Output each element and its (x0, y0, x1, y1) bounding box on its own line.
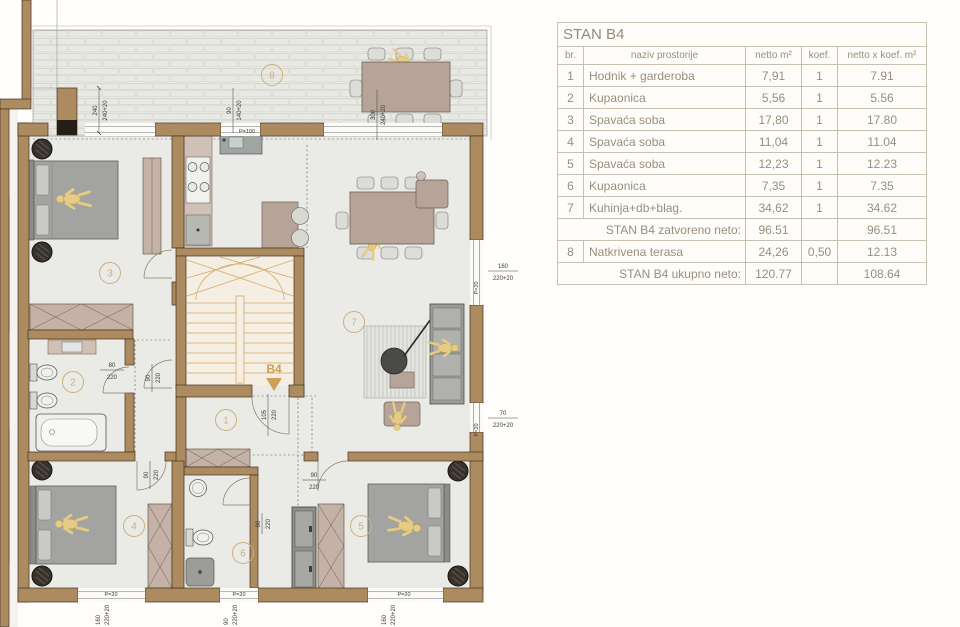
toilet-icon (37, 365, 57, 380)
svg-text:3: 3 (107, 269, 113, 280)
svg-text:6: 6 (240, 549, 246, 560)
total-label: STAN B4 ukupno neto: (558, 263, 746, 285)
armchair (416, 180, 448, 208)
area-table-panel: STAN B4 br. naziv prostorije netto m² ko… (557, 22, 927, 285)
svg-text:90: 90 (227, 107, 233, 114)
svg-text:240: 240 (93, 105, 99, 116)
wall-cap (57, 120, 77, 135)
svg-text:105: 105 (262, 409, 268, 420)
dim-bottom-window1: 160 220+20 (96, 604, 111, 625)
svg-text:220+20: 220+20 (233, 604, 239, 625)
table-row: 2 Kupaonica 5,56 1 5.56 (558, 87, 927, 109)
subtotal-label: STAN B4 zatvoreno neto: (558, 219, 746, 241)
area-table: STAN B4 br. naziv prostorije netto m² ko… (557, 22, 927, 285)
col-br: br. (558, 47, 584, 65)
label-p20: P=20 (233, 592, 246, 598)
svg-text:2: 2 (70, 378, 76, 389)
svg-text:220+20: 220+20 (105, 604, 111, 625)
wardrobe (148, 504, 172, 588)
page: 240 240+20 90 140+20 P=100 300 240+20 16… (0, 0, 960, 627)
washbasin-icon (190, 480, 207, 497)
svg-text:90: 90 (311, 473, 318, 479)
svg-text:220+20: 220+20 (391, 604, 397, 625)
svg-text:90: 90 (144, 471, 150, 478)
col-koef: koef. (802, 47, 838, 65)
svg-text:220: 220 (156, 372, 162, 383)
svg-text:7: 7 (351, 318, 357, 329)
svg-text:80: 80 (256, 520, 262, 527)
wardrobe (30, 304, 133, 330)
svg-text:160: 160 (382, 614, 388, 625)
col-netto: netto m² (746, 47, 802, 65)
svg-text:8: 8 (269, 71, 275, 82)
stool-icon (292, 230, 309, 247)
svg-text:220: 220 (154, 469, 160, 480)
svg-text:160: 160 (498, 264, 509, 270)
svg-text:160: 160 (96, 614, 102, 625)
svg-text:90: 90 (146, 374, 152, 381)
coffee-table (381, 348, 407, 374)
svg-text:220: 220 (266, 518, 272, 529)
svg-text:5: 5 (358, 522, 364, 533)
label-p20: P=20 (105, 592, 118, 598)
svg-text:90: 90 (224, 618, 230, 625)
svg-text:240+20: 240+20 (381, 104, 387, 125)
label-p20: P=20 (398, 592, 411, 598)
wall-gap (9, 109, 18, 627)
dim-living-window: 160 220+20 (488, 264, 518, 282)
wardrobe (318, 504, 344, 589)
svg-text:1: 1 (223, 416, 229, 427)
label-p20: P=20 (474, 424, 480, 437)
wardrobe (186, 449, 250, 467)
svg-text:220: 220 (272, 409, 278, 420)
table-row: 1 Hodnik + garderoba 7,91 1 7.91 (558, 65, 927, 87)
total-row: STAN B4 ukupno neto: 120.77 108.64 (558, 263, 927, 285)
dim-small-window: 70 220+20 (488, 411, 518, 429)
col-naziv: naziv prostorije (584, 47, 746, 65)
table-row: 3 Spavaća soba 17,80 1 17.80 (558, 109, 927, 131)
table-row: 6 Kupaonica 7,35 1 7.35 (558, 175, 927, 197)
svg-text:220+20: 220+20 (493, 423, 514, 429)
washbasin-icon (62, 342, 82, 352)
table-title: STAN B4 (558, 23, 927, 47)
svg-text:220: 220 (107, 375, 118, 381)
svg-text:80: 80 (109, 363, 116, 369)
bidet-icon (37, 393, 57, 408)
label-p20: P=20 (474, 282, 480, 295)
svg-text:300: 300 (371, 109, 377, 120)
label-p100: P=100 (239, 129, 255, 135)
dim-bottom-window3: 160 220+20 (382, 604, 397, 625)
floor-plan: 240 240+20 90 140+20 P=100 300 240+20 16… (0, 0, 540, 627)
svg-text:220+20: 220+20 (493, 276, 514, 282)
unit-code: B4 (266, 362, 282, 376)
dim-bottom-window2: 90 220+20 (224, 604, 239, 625)
table-row: 4 Spavaća soba 11,04 1 11.04 (558, 131, 927, 153)
svg-text:140+20: 140+20 (237, 100, 243, 121)
svg-text:240+20: 240+20 (103, 100, 109, 121)
subtotal-row: STAN B4 zatvoreno neto: 96.51 96.51 (558, 219, 927, 241)
table-row: 8 Natkrivena terasa 24,26 0,50 12.13 (558, 241, 927, 263)
table-row: 5 Spavaća soba 12,23 1 12.23 (558, 153, 927, 175)
stool-icon (292, 208, 309, 225)
table-header-row: br. naziv prostorije netto m² koef. nett… (558, 47, 927, 65)
table-row: 7 Kuhinja+db+blag. 34,62 1 34.62 (558, 197, 927, 219)
toilet-icon (193, 530, 213, 545)
svg-text:220: 220 (309, 485, 320, 491)
svg-text:70: 70 (500, 411, 507, 417)
col-total: netto x koef. m² (838, 47, 927, 65)
svg-text:4: 4 (131, 522, 137, 533)
